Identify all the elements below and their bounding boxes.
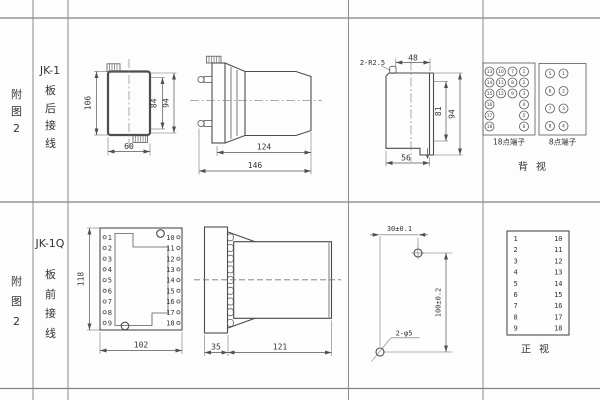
terminal-number: 9 [511, 91, 514, 97]
panel-terminal-number: 9 [108, 320, 112, 328]
terminal-number: 10 [498, 69, 504, 75]
panel-terminal-number: 15 [166, 287, 174, 295]
wiring-type-label-row2: 板前接线 [43, 265, 58, 343]
terminal-grid-8: 5 1 6 2 7 3 8 4 8点端子 [539, 64, 586, 147]
terminal-number: 12 [498, 91, 504, 97]
panel-terminal-number: 17 [166, 309, 174, 317]
front-view-label: 正视 [521, 343, 557, 356]
terminal-number: 3 [562, 106, 565, 112]
table-terminal-number: 9 [514, 325, 518, 333]
dim-label-48: 48 [408, 54, 418, 63]
dim-label-94: 94 [162, 98, 171, 108]
table-grid [0, 0, 600, 400]
dim-label-56: 56 [401, 154, 411, 163]
terminal-8-caption: 8点端子 [549, 137, 577, 147]
terminal-number: 3 [523, 91, 526, 97]
terminal-number: 4 [523, 102, 526, 108]
terminal-number: 1 [562, 71, 565, 77]
terminal-number: 7 [511, 69, 514, 75]
panel-terminal-number: 4 [108, 266, 112, 274]
terminal-number: 17 [487, 113, 493, 119]
panel-terminal-number: 6 [108, 287, 112, 295]
panel-terminal-number: 16 [166, 298, 174, 306]
terminal-number: 2 [523, 80, 526, 86]
panel-terminal-number: 18 [166, 320, 174, 328]
wiring-type-label-row1: 板后接线 [43, 82, 58, 152]
dim-label-121: 121 [273, 343, 288, 352]
dim-label-94b: 94 [448, 109, 457, 119]
terminal-number: 5 [549, 71, 552, 77]
model-label-jk1: JK-1 [36, 64, 64, 77]
jk1q-panel-view-drawing: 1 2 3 4 5 6 7 8 9 10 11 12 13 14 15 16 1… [77, 228, 183, 354]
table-terminal-number: 5 [514, 280, 518, 288]
table-terminal-number: 7 [514, 302, 518, 310]
terminal-number: 1 [523, 69, 526, 75]
panel-terminal-number: 3 [108, 255, 112, 263]
terminal-number: 18 [487, 124, 493, 130]
terminal-number: 16 [487, 102, 493, 108]
dim-label-100: 100±0.2 [435, 288, 443, 318]
terminal-number: 6 [523, 124, 526, 130]
hole-diameter-note: 2-φ5 [396, 330, 413, 338]
panel-terminal-number: 2 [108, 245, 112, 253]
terminal-number: 7 [549, 106, 552, 112]
drilling-plan-drawing: 30±0.1 100±0.2 2-φ5 [370, 225, 453, 362]
terminal-number: 4 [562, 124, 565, 130]
dim-label-60: 60 [124, 142, 134, 151]
panel-terminal-number: 10 [166, 234, 174, 242]
jk1-rear-face-drawing: 106 84 94 60 [84, 59, 177, 156]
dim-label-124: 124 [257, 143, 272, 152]
panel-terminal-number: 8 [108, 309, 112, 317]
dim-label-106: 106 [84, 96, 93, 111]
table-terminal-number: 6 [514, 291, 518, 299]
table-terminal-number: 17 [554, 313, 562, 321]
table-terminal-number: 16 [554, 302, 562, 310]
dim-label-30: 30±0.1 [387, 225, 412, 233]
terminal-number: 8 [511, 80, 514, 86]
terminal-number: 13 [487, 69, 493, 75]
jk1-side-view-drawing: 124 146 [190, 56, 322, 174]
table-terminal-number: 3 [514, 257, 518, 265]
corner-radius-note: 2-R2.5 [360, 59, 385, 67]
panel-terminal-number: 13 [166, 266, 174, 274]
dim-label-102: 102 [134, 341, 149, 350]
terminal-number: 8 [549, 124, 552, 130]
terminal-18-caption: 18点端子 [493, 137, 526, 147]
table-terminal-number: 11 [554, 246, 562, 254]
panel-terminal-number: 12 [166, 255, 174, 263]
figure-label-row1: 附图2 [9, 86, 24, 137]
table-terminal-number: 15 [554, 291, 562, 299]
rear-view-label: 背视 [518, 160, 554, 173]
dim-label-35: 35 [211, 343, 221, 352]
table-terminal-number: 10 [554, 235, 562, 243]
dim-label-146: 146 [248, 161, 263, 170]
table-terminal-number: 14 [554, 280, 562, 288]
dim-label-118: 118 [77, 272, 86, 287]
panel-terminal-number: 11 [166, 245, 174, 253]
terminal-number: 14 [487, 80, 493, 86]
terminal-number: 2 [562, 89, 565, 95]
table-terminal-number: 2 [514, 246, 518, 254]
table-terminal-number: 4 [514, 269, 518, 277]
terminal-number: 15 [487, 91, 493, 97]
datasheet-page: 106 84 94 60 124 146 [0, 0, 600, 400]
terminal-number: 11 [498, 80, 504, 86]
panel-terminal-number: 1 [108, 234, 112, 242]
jk1q-side-view-drawing: 35 121 [194, 227, 341, 356]
table-terminal-number: 18 [554, 325, 562, 333]
dim-label-81: 81 [434, 106, 443, 116]
table-terminal-number: 12 [554, 257, 562, 265]
model-label-jk1q: JK-1Q [33, 237, 67, 250]
table-terminal-number: 8 [514, 313, 518, 321]
panel-terminal-number: 7 [108, 298, 112, 306]
table-terminal-number: 13 [554, 269, 562, 277]
front-terminal-table: 1 2 3 4 5 6 7 8 9 10 11 12 13 14 15 16 1… [507, 231, 569, 356]
panel-terminal-number: 5 [108, 277, 112, 285]
terminal-grid-18: 13 10 7 1 14 11 8 2 15 12 9 3 16 4 17 5 … [483, 63, 535, 147]
jk1-section-view-drawing: 2-R2.5 48 81 94 56 [360, 54, 463, 167]
panel-terminal-number: 14 [166, 277, 174, 285]
terminal-number: 6 [549, 89, 552, 95]
dim-label-84: 84 [150, 98, 159, 108]
table-terminal-number: 1 [514, 235, 518, 243]
figure-label-row2: 附图2 [9, 272, 24, 332]
terminal-number: 5 [523, 113, 526, 119]
